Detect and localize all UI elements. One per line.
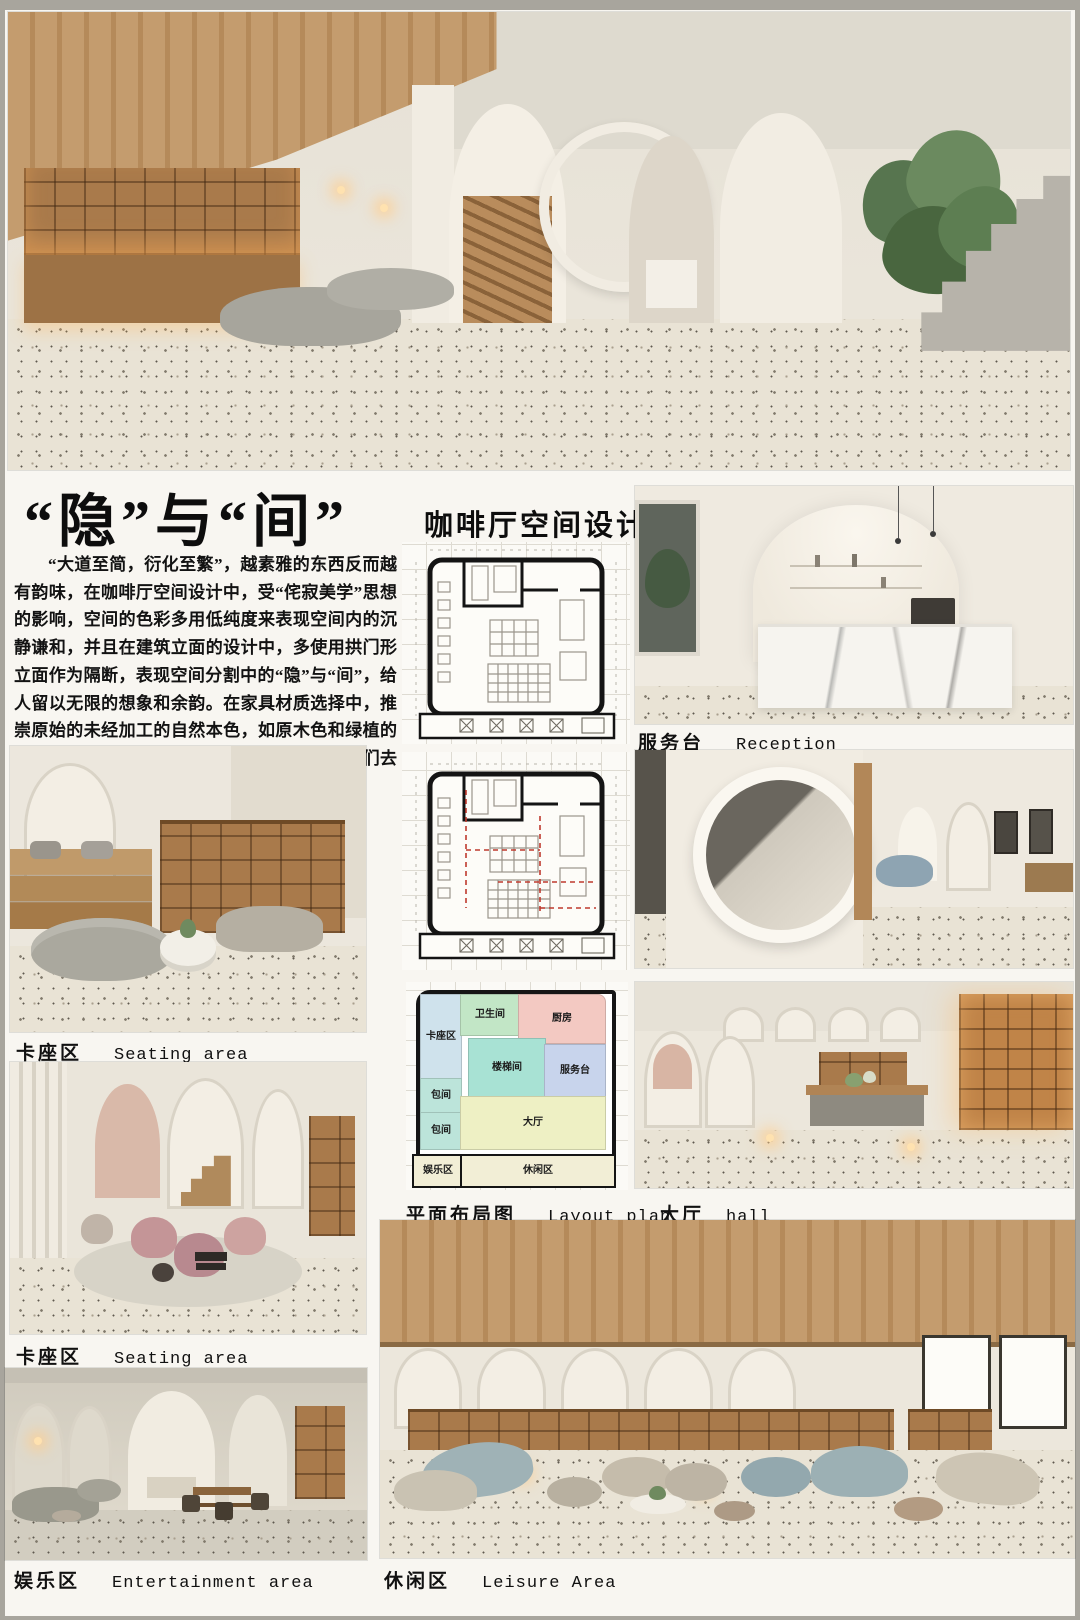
- pink-armchair: [224, 1217, 267, 1255]
- hall-desk-top: [806, 1085, 929, 1095]
- vanity-counter-shape: [646, 260, 697, 309]
- porthole-wall: [666, 750, 863, 968]
- entertainment-ceiling-edge: [5, 1368, 367, 1383]
- curved-sofa-shape: [216, 906, 323, 952]
- desk-flowers: [845, 1073, 863, 1087]
- dark-chair: [182, 1495, 200, 1512]
- plan-room-stairwell: 楼梯间: [468, 1038, 546, 1098]
- dark-chair: [251, 1493, 269, 1510]
- floor-light-glow: [907, 1143, 915, 1151]
- plan-room-leisure: 休闲区: [460, 1154, 616, 1188]
- hall-arch-left: [705, 1036, 755, 1129]
- table-plant: [649, 1486, 666, 1500]
- blue-sofa-shape: [876, 855, 933, 888]
- seating-area-2-photo: [10, 1062, 366, 1334]
- wood-shelf-column: [309, 1116, 355, 1236]
- white-coffee-table: [630, 1494, 686, 1514]
- caption-leisure-cn: 休闲区: [384, 1566, 450, 1593]
- corridor-photo: [635, 750, 1073, 968]
- caption-seating2-cn: 卡座区: [16, 1342, 82, 1369]
- caption-seating1: 卡座区 Seating area: [16, 1038, 248, 1065]
- caption-entertainment-en: Entertainment area: [112, 1574, 314, 1593]
- plan-room-restroom: 卫生间: [460, 994, 520, 1036]
- caption-entertainment-cn: 娱乐区: [14, 1566, 80, 1593]
- hall-arch-niche: [828, 1007, 869, 1042]
- window-plant: [645, 549, 691, 608]
- floor-plan-2-drawing: [402, 752, 630, 970]
- wood-bench: [1025, 863, 1073, 891]
- beige-sofa: [394, 1470, 477, 1511]
- stair-silhouette: [181, 1149, 231, 1207]
- shelf-item: [815, 555, 820, 567]
- floor-plan-furniture: [402, 542, 630, 744]
- plan-room-entertainment: 娱乐区: [412, 1154, 464, 1188]
- hero-wood-shelf-unit: [24, 168, 300, 255]
- desk-flowers: [863, 1071, 876, 1083]
- pendant-cord: [898, 486, 899, 538]
- seating-area-1-photo: [10, 746, 366, 1032]
- caption-entertainment: 娱乐区 Entertainment area: [14, 1566, 314, 1593]
- pink-armchair: [131, 1217, 177, 1258]
- hero-interior-photo: [8, 12, 1070, 470]
- hall-display-shelf: [819, 1052, 907, 1087]
- entertainment-area-photo: [5, 1368, 367, 1560]
- wall-art-frame: [1029, 809, 1053, 854]
- espresso-machine: [911, 598, 955, 627]
- curved-sofa-shape: [31, 918, 173, 981]
- corridor-arch: [946, 802, 991, 891]
- hall-arch-niche: [775, 1007, 816, 1042]
- bright-window: [999, 1335, 1068, 1429]
- wall-art-frame: [994, 811, 1018, 854]
- curved-sofa-shape: [327, 268, 454, 309]
- blue-armchair: [741, 1457, 811, 1498]
- blue-curved-sofa: [811, 1446, 908, 1497]
- hero-terrazzo-floor: [8, 319, 1070, 470]
- slatted-wall: [10, 1062, 67, 1274]
- hall-photo: [635, 982, 1073, 1188]
- shelf-item: [852, 554, 857, 567]
- layout-plan-colored: 卡座区 卫生间 厨房 楼梯间 服务台 包间 包间 大厅 娱乐区 休闲区: [406, 982, 628, 1190]
- stair-arch: [167, 1078, 244, 1209]
- alcove-shelf: [790, 587, 922, 589]
- glowing-shelf-wall: [959, 994, 1073, 1130]
- plan-room-booth-zone: 卡座区: [420, 994, 462, 1080]
- dark-chair: [215, 1502, 233, 1519]
- poster-title: “隐”与“间”: [24, 474, 349, 558]
- stool-shape: [152, 1263, 173, 1282]
- platform-cushion: [81, 841, 112, 859]
- caption-seating2: 卡座区 Seating area: [16, 1342, 248, 1369]
- wood-shelf-column: [295, 1406, 346, 1498]
- armchair-shape: [81, 1214, 113, 1244]
- hall-arch-niche: [880, 1007, 921, 1042]
- tiered-wood-platform: [10, 849, 152, 929]
- wood-pillar: [854, 763, 872, 920]
- plan-room-service-desk: 服务台: [544, 1044, 606, 1098]
- round-porthole-window: [693, 767, 869, 943]
- floor-plan-1-drawing: [402, 542, 630, 744]
- reception-window: [635, 500, 700, 656]
- poster-subtitle: 咖啡厅空间设计: [424, 502, 648, 544]
- round-pouf: [714, 1501, 756, 1521]
- reception-photo: [635, 486, 1073, 724]
- pendant-cord: [933, 486, 934, 531]
- plan-room-kitchen: 厨房: [518, 994, 606, 1044]
- caption-seating2-en: Seating area: [114, 1350, 248, 1369]
- table-plant: [180, 919, 196, 938]
- round-pouf: [894, 1497, 943, 1521]
- hall-floor: [635, 1130, 1073, 1188]
- caption-leisure: 休闲区 Leisure Area: [384, 1566, 616, 1593]
- platform-cushion: [30, 841, 61, 859]
- spiral-stair-shape: [463, 196, 552, 324]
- marble-counter: [758, 624, 1012, 708]
- leisure-area-photo: [380, 1220, 1075, 1558]
- leisure-wood-ceiling: [380, 1220, 1075, 1347]
- pink-arch-wall: [653, 1044, 692, 1089]
- plan-room-private-1: 包间: [420, 1078, 462, 1114]
- caption-seating1-cn: 卡座区: [16, 1038, 82, 1065]
- floor-plan-circulation: [402, 752, 630, 970]
- plan-room-private-2: 包间: [420, 1112, 462, 1150]
- corridor-dark-doorway: [635, 750, 666, 914]
- hall-desk-base: [810, 1095, 924, 1126]
- pink-arch-wall: [95, 1084, 159, 1198]
- wood-dining-table: [193, 1487, 251, 1495]
- plan-room-main-hall: 大厅: [460, 1096, 606, 1150]
- shelf-item: [881, 577, 886, 588]
- round-table: [52, 1510, 81, 1522]
- caption-leisure-en: Leisure Area: [482, 1574, 616, 1593]
- black-side-table: [195, 1252, 227, 1260]
